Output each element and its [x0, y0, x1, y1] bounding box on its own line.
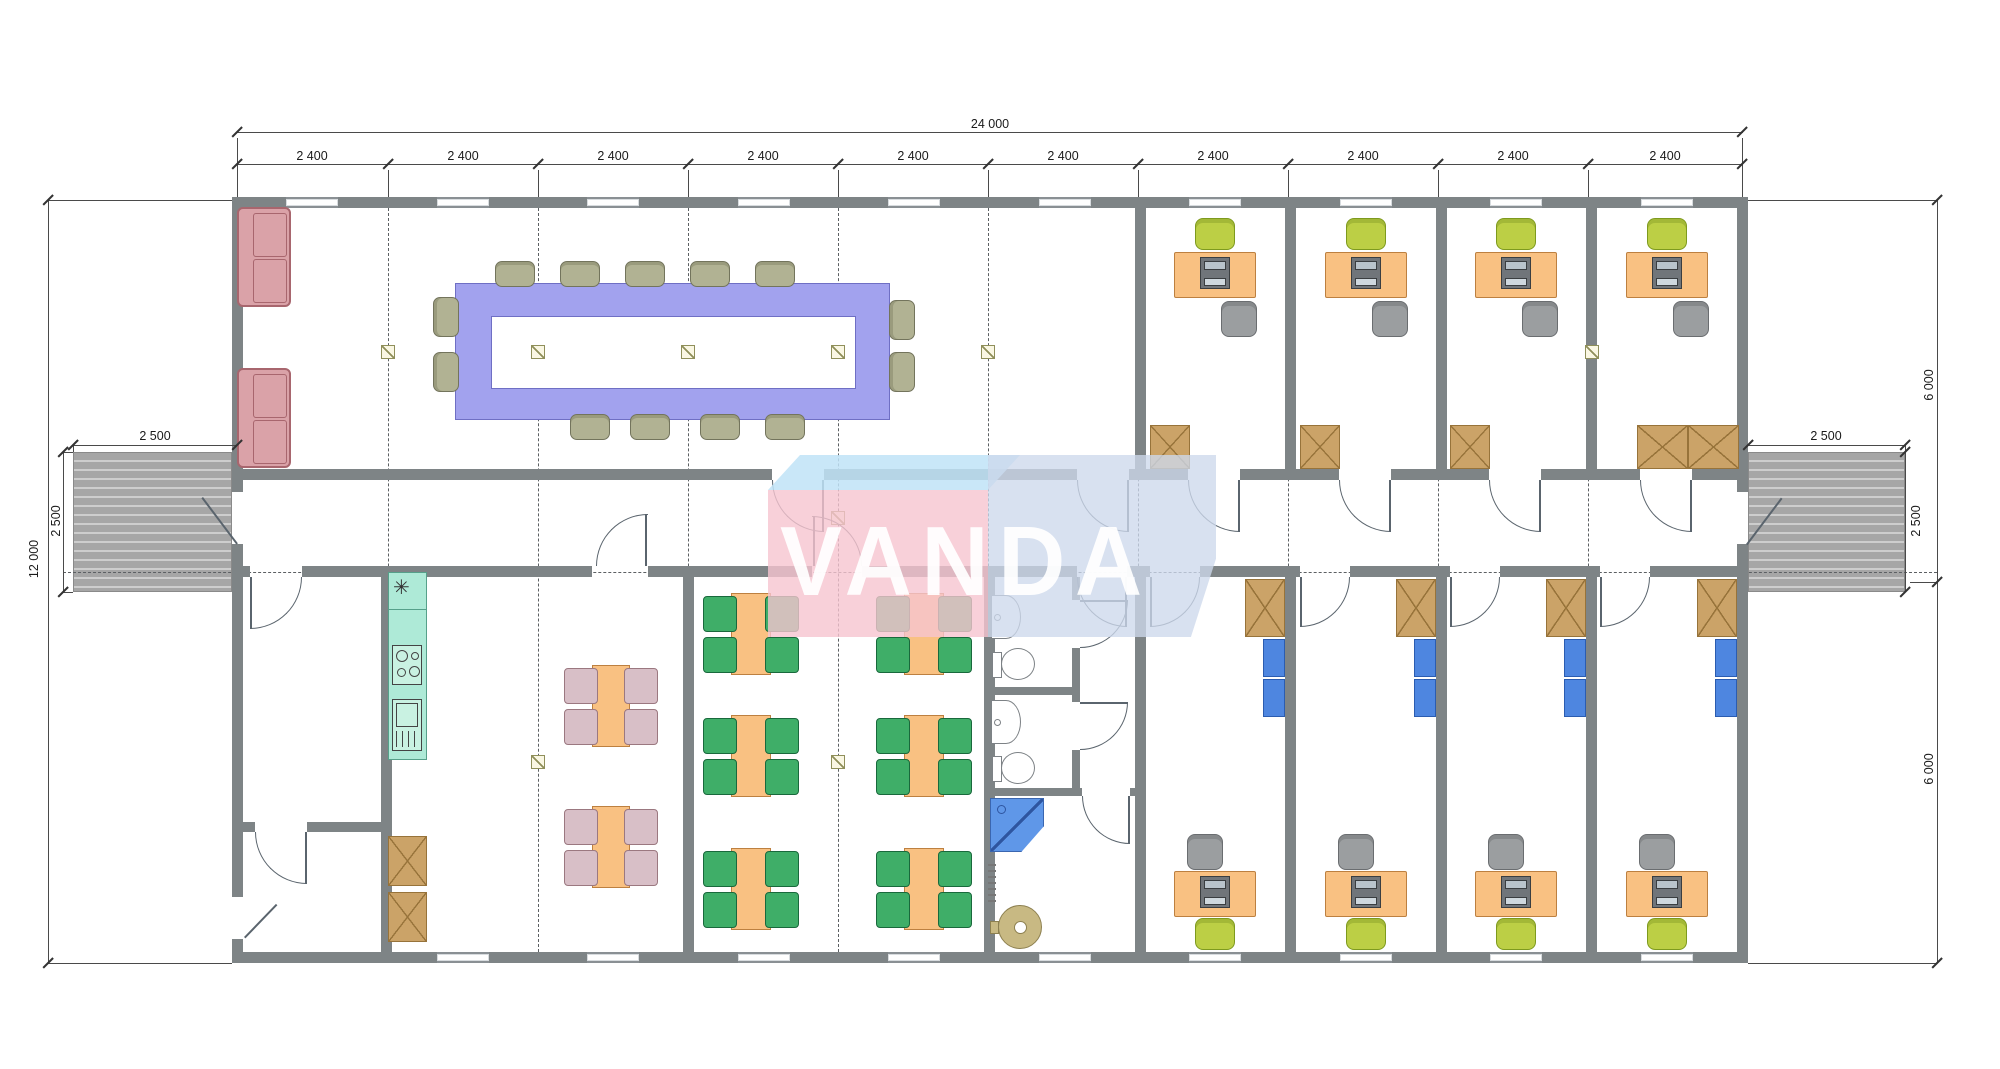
grid-marker [381, 345, 395, 359]
toilet-bowl [1001, 648, 1035, 680]
sink-symbol: ✳ [393, 575, 410, 600]
chair-green [765, 596, 799, 632]
dim-label-porch-width: 2 500 [115, 429, 195, 443]
wall [1500, 566, 1600, 577]
door-leaf [1300, 577, 1302, 627]
office-chair-lime [1195, 918, 1235, 950]
dimension-line [63, 452, 64, 592]
wall [683, 577, 694, 952]
right-porch-deck [1748, 452, 1905, 592]
extension-line [538, 170, 539, 197]
office-chair-gray [1221, 301, 1257, 337]
dim-label-porch-depth: 2 500 [1909, 481, 1923, 561]
window [1039, 197, 1091, 208]
wall [648, 566, 812, 577]
cabinet [1450, 425, 1490, 469]
office-chair-gray [1372, 301, 1408, 337]
wall [1072, 648, 1080, 702]
dim-label-total-width: 24 000 [930, 117, 1050, 131]
door-opening [232, 492, 244, 544]
extension-line [388, 170, 389, 197]
desktop-computer [1501, 876, 1531, 908]
chair-green [703, 637, 737, 673]
chair-green [703, 851, 737, 887]
office-chair-lime [1346, 918, 1386, 950]
dim-label-bay: 2 400 [1625, 149, 1705, 163]
extension-line [688, 170, 689, 197]
wall [1692, 469, 1737, 480]
chair-pink [564, 709, 598, 745]
dimension-line [48, 200, 49, 963]
dimension-line [237, 132, 1743, 133]
dimension-line [1748, 445, 1905, 446]
chair-green [765, 637, 799, 673]
extension-line [63, 592, 73, 593]
office-chair-gray [1187, 834, 1223, 870]
wall [1541, 469, 1640, 480]
wall [1240, 469, 1339, 480]
dim-label-bay: 2 400 [1323, 149, 1403, 163]
window [1189, 197, 1241, 208]
desktop-computer [1652, 876, 1682, 908]
chair-green [938, 596, 972, 632]
window [888, 197, 940, 208]
door-opening [232, 897, 244, 939]
stove [392, 645, 422, 685]
conference-chair [495, 261, 535, 287]
wall [302, 566, 592, 577]
chair-green [703, 892, 737, 928]
wall [1650, 566, 1737, 577]
cabinet [1245, 579, 1285, 637]
wall [1350, 566, 1450, 577]
counter-divider [389, 609, 426, 610]
wall [1135, 577, 1146, 952]
extension-line [237, 138, 238, 197]
cabinet [1150, 425, 1190, 469]
chair-green [876, 851, 910, 887]
dimension-line [73, 445, 237, 446]
shelf-unit [1414, 679, 1436, 717]
office-chair-gray [1639, 834, 1675, 870]
conference-chair [700, 414, 740, 440]
dimension-line [1905, 452, 1906, 592]
extension-line [1438, 170, 1439, 197]
sofa-cushion [253, 259, 287, 303]
dim-label-bay: 2 400 [873, 149, 953, 163]
sofa [237, 368, 291, 468]
door-leaf [1539, 480, 1541, 532]
extension-line [838, 170, 839, 197]
wall [990, 687, 1078, 695]
sofa-cushion [253, 420, 287, 464]
shelf-unit [1263, 639, 1285, 677]
chair-green [876, 637, 910, 673]
grid-marker [831, 755, 845, 769]
office-chair-gray [1338, 834, 1374, 870]
chair-green [938, 637, 972, 673]
burner [397, 668, 406, 677]
dim-label-bay: 2 400 [573, 149, 653, 163]
shelf-unit [1715, 679, 1737, 717]
toilet-bowl [1001, 752, 1035, 784]
window [1340, 197, 1392, 208]
door-leaf [250, 577, 252, 629]
window [1340, 952, 1392, 963]
wall [1391, 469, 1489, 480]
washbasin [991, 700, 1021, 744]
office-chair-lime [1346, 218, 1386, 250]
chair-green [765, 718, 799, 754]
sofa-cushion [253, 213, 287, 257]
wall [1130, 788, 1140, 796]
door-leaf [1238, 480, 1240, 532]
door-leaf [1600, 577, 1602, 627]
window [1490, 197, 1542, 208]
door-leaf [305, 832, 307, 884]
door-leaf [1128, 796, 1130, 844]
window [437, 197, 489, 208]
conference-chair [433, 352, 459, 392]
wall [1436, 577, 1447, 952]
toilet [992, 648, 1036, 680]
office-chair-gray [1673, 301, 1709, 337]
chair-pink [624, 850, 658, 886]
heater-valve [990, 921, 999, 934]
wall [1586, 577, 1597, 952]
dim-label-half-height: 6 000 [1922, 345, 1936, 425]
chair-green [876, 718, 910, 754]
dim-label-porch-width: 2 500 [1786, 429, 1866, 443]
office-chair-gray [1488, 834, 1524, 870]
shelf-unit [1263, 679, 1285, 717]
cabinet [388, 836, 427, 886]
extension-line [1588, 170, 1589, 197]
extension-line [1138, 170, 1139, 197]
conference-chair [889, 300, 915, 340]
wall [1285, 577, 1296, 952]
chair-green [703, 596, 737, 632]
cabinet [388, 892, 427, 942]
cabinet [1396, 579, 1436, 637]
chair-green [938, 892, 972, 928]
office-chair-lime [1496, 918, 1536, 950]
door-leaf [1080, 600, 1128, 602]
office-chair-lime [1647, 918, 1687, 950]
grid-marker [681, 345, 695, 359]
window [1039, 952, 1091, 963]
cabinet [1300, 425, 1340, 469]
shelf-unit [1715, 639, 1737, 677]
conference-table-opening [491, 316, 856, 389]
wall [862, 566, 1077, 577]
office-chair-gray [1522, 301, 1558, 337]
door-leaf [645, 514, 647, 566]
office-chair-lime [1647, 218, 1687, 250]
conference-chair [765, 414, 805, 440]
toilet [992, 752, 1036, 784]
door-opening [1736, 492, 1748, 544]
window [1641, 952, 1693, 963]
grid-marker [531, 755, 545, 769]
extension-line [1748, 200, 1937, 201]
wall [237, 822, 255, 832]
chair-pink [624, 809, 658, 845]
dim-label-total-height: 12 000 [27, 519, 41, 599]
chair-pink [624, 668, 658, 704]
conference-chair [625, 261, 665, 287]
office-chair-lime [1195, 218, 1235, 250]
dim-label-bay: 2 400 [1173, 149, 1253, 163]
radiator [988, 862, 996, 902]
conference-chair [433, 297, 459, 337]
grid-marker [831, 345, 845, 359]
chair-pink [564, 809, 598, 845]
conference-table [455, 283, 890, 420]
floor-plan: ✳ [0, 0, 2000, 1069]
chair-green [876, 596, 910, 632]
dim-label-bay: 2 400 [423, 149, 503, 163]
dim-label-bay: 2 400 [723, 149, 803, 163]
extension-line [1742, 138, 1743, 197]
window [1490, 952, 1542, 963]
sofa [237, 207, 291, 307]
wall [243, 566, 250, 577]
extension-line [63, 452, 73, 453]
desktop-computer [1652, 257, 1682, 289]
desktop-computer [1351, 257, 1381, 289]
door-leaf [1127, 480, 1129, 532]
extension-line [48, 200, 232, 201]
dim-label-porch-depth: 2 500 [49, 481, 63, 561]
chair-pink [564, 850, 598, 886]
office-chair-lime [1496, 218, 1536, 250]
window [1641, 197, 1693, 208]
window [738, 952, 790, 963]
chair-green [703, 718, 737, 754]
dim-label-bay: 2 400 [272, 149, 352, 163]
burner [411, 652, 419, 660]
conference-chair [560, 261, 600, 287]
chair-green [765, 759, 799, 795]
left-porch-deck [73, 452, 232, 592]
cabinet [1546, 579, 1586, 637]
door-leaf [1150, 577, 1152, 627]
wall [1200, 566, 1300, 577]
wall [1436, 208, 1447, 469]
water-heater [998, 905, 1042, 949]
dim-label-bay: 2 400 [1023, 149, 1103, 163]
shelf-unit [1564, 679, 1586, 717]
chair-green [876, 759, 910, 795]
wall [1129, 469, 1188, 480]
extension-line [1748, 963, 1937, 964]
wall [1072, 750, 1080, 792]
refrigerator [392, 699, 422, 751]
conference-chair [630, 414, 670, 440]
wall [1127, 566, 1150, 577]
window [587, 197, 639, 208]
washbasin [991, 595, 1021, 639]
door-leaf [1690, 480, 1692, 532]
chair-pink [564, 668, 598, 704]
shelf-unit [1564, 639, 1586, 677]
window [888, 952, 940, 963]
dimension-line [237, 164, 1743, 165]
sofa-cushion [253, 374, 287, 418]
conference-chair [690, 261, 730, 287]
chair-green [938, 759, 972, 795]
desktop-computer [1351, 876, 1381, 908]
window [1189, 952, 1241, 963]
window [286, 197, 338, 208]
extension-line [1288, 170, 1289, 197]
chair-green [938, 718, 972, 754]
wall [990, 788, 1082, 796]
wall [824, 469, 1077, 480]
desktop-computer [1501, 257, 1531, 289]
wall [307, 822, 386, 832]
door-leaf [813, 516, 815, 566]
extension-line [988, 170, 989, 197]
grid-marker [1585, 345, 1599, 359]
conference-chair [570, 414, 610, 440]
door-leaf [1450, 577, 1452, 627]
conference-chair [755, 261, 795, 287]
wall [243, 469, 772, 480]
conference-chair [889, 352, 915, 392]
door-leaf [1080, 702, 1128, 704]
chair-green [938, 851, 972, 887]
kitchen-counter: ✳ [388, 572, 427, 760]
desktop-computer [1200, 876, 1230, 908]
extension-line [73, 445, 74, 452]
chair-green [703, 759, 737, 795]
dim-label-bay: 2 400 [1473, 149, 1553, 163]
chair-green [876, 892, 910, 928]
grid-marker [531, 345, 545, 359]
window [587, 952, 639, 963]
window [437, 952, 489, 963]
dim-label-half-height: 6 000 [1922, 729, 1936, 809]
desktop-computer [1200, 257, 1230, 289]
grid-marker [981, 345, 995, 359]
chair-pink [624, 709, 658, 745]
cabinet [1688, 425, 1739, 469]
burner [409, 666, 420, 677]
chair-green [765, 892, 799, 928]
cabinet [1697, 579, 1737, 637]
window [738, 197, 790, 208]
shelf-unit [1414, 639, 1436, 677]
door-leaf [1389, 480, 1391, 532]
burner [396, 650, 408, 662]
chair-green [765, 851, 799, 887]
cabinet [1637, 425, 1688, 469]
extension-line [48, 963, 232, 964]
wall [1586, 208, 1597, 469]
wall [1285, 208, 1296, 469]
wall [1135, 208, 1146, 469]
